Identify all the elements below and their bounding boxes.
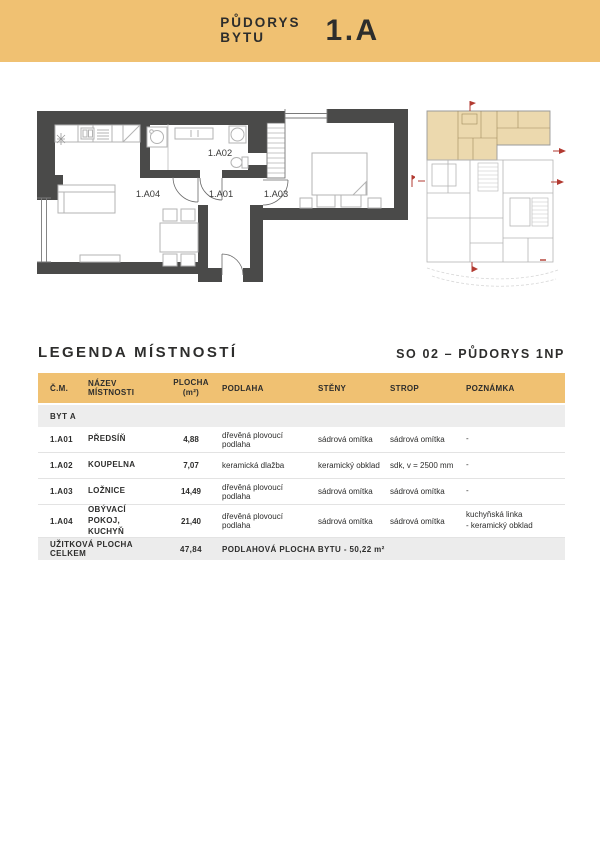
col-header-ceiling: STROP [390,384,466,393]
key-plan-staircase [478,163,548,226]
cell-area: 7,07 [160,461,222,470]
installation-shaft [267,123,285,178]
cell-ceiling: sádrová omítka [390,487,466,496]
table-section-row: BYT A [38,405,565,427]
cell-floor: dřevěná plovoucí podlaha [222,483,318,501]
room-label-1a04: 1.A04 [136,189,160,199]
cell-ceiling: sádrová omítka [390,517,466,526]
washing-machine [147,127,167,147]
cell-ceiling: sdk, v = 2500 mm [390,461,466,470]
legend-title: LEGENDA MÍSTNOSTÍ [38,344,237,361]
key-plan-terrain-lines [427,268,558,286]
cell-area: 21,40 [160,517,222,526]
cell-name: OBÝVACÍ POKOJ, KUCHYŇ [88,505,160,537]
room-label-1a03: 1.A03 [264,189,288,199]
section-mark-icon [412,175,415,187]
room-legend-table: Č.M. NÁZEV MÍSTNOSTI PLOCHA (m²) PODLAHA… [38,373,565,560]
header-band: PŮDORYS BYTU 1.A [0,0,600,62]
cell-cm: 1.A01 [50,435,88,444]
table-footer-row: UŽITKOVÁ PLOCHA CELKEM 47,84 PODLAHOVÁ P… [38,538,565,560]
dining-table [160,209,198,266]
col-header-area: PLOCHA (m²) [160,378,222,398]
cell-walls: sádrová omítka [318,487,390,496]
cell-floor: dřevěná plovoucí podlaha [222,512,318,530]
cell-ceiling: sádrová omítka [390,435,466,444]
cell-name: PŘEDSÍŇ [88,434,160,445]
col-header-floor: PODLAHA [222,384,318,393]
cell-note: - [466,460,565,471]
cell-floor: keramická dlažba [222,461,318,470]
legend-header: LEGENDA MÍSTNOSTÍ SO 02 – PŮDORYS 1NP [38,344,565,361]
room-label-1a01: 1.A01 [209,189,233,199]
cell-area: 14,49 [160,487,222,496]
table-row: 1.A03 LOŽNICE 14,49 dřevěná plovoucí pod… [38,479,565,505]
col-header-cm: Č.M. [50,384,88,393]
page: PŮDORYS BYTU 1.A [0,0,600,849]
tv-bench [80,255,120,262]
cell-cm: 1.A02 [50,461,88,470]
legend-subtitle: SO 02 – PŮDORYS 1NP [396,347,565,361]
footer-total-area: 47,84 [160,545,222,554]
col-header-note: POZNÁMKA [466,384,565,393]
cell-walls: keramický obklad [318,461,390,470]
sofa [58,185,115,213]
key-plan [418,98,568,293]
window-left [37,198,51,262]
kitchen-counter [55,125,140,142]
page-title-line1: PŮDORYS [220,16,300,31]
bathroom-fixtures [168,124,248,170]
table-row: 1.A04 OBÝVACÍ POKOJ, KUCHYŇ 21,40 dřevěn… [38,505,565,538]
cell-name: LOŽNICE [88,486,160,497]
window-top [285,109,327,123]
cell-area: 4,88 [160,435,222,444]
cell-cm: 1.A03 [50,487,88,496]
header-content: PŮDORYS BYTU 1.A [0,0,600,62]
section-label: BYT A [50,412,76,421]
table-row: 1.A01 PŘEDSÍŇ 4,88 dřevěná plovoucí podl… [38,427,565,453]
cell-note: kuchyňská linka - keramický obklad [466,510,565,532]
cell-floor: dřevěná plovoucí podlaha [222,431,318,449]
main-floor-plan: 1.A02 1.A04 1.A01 1.A03 [35,105,415,295]
cell-walls: sádrová omítka [318,435,390,444]
unit-label: 1.A [326,14,380,48]
col-header-name: NÁZEV MÍSTNOSTI [88,379,160,397]
col-header-walls: STĚNY [318,384,390,393]
room-label-1a02: 1.A02 [208,148,232,158]
cell-name: KOUPELNA [88,460,160,471]
cell-note: - [466,434,565,445]
bed [300,153,381,208]
table-header-row: Č.M. NÁZEV MÍSTNOSTI PLOCHA (m²) PODLAHA… [38,373,565,403]
cell-cm: 1.A04 [50,517,88,526]
footer-total-label: UŽITKOVÁ PLOCHA CELKEM [50,540,160,558]
key-plan-highlighted-unit [427,111,550,160]
page-title-line2: BYTU [220,31,300,46]
table-row: 1.A02 KOUPELNA 7,07 keramická dlažba ker… [38,453,565,479]
cell-walls: sádrová omítka [318,517,390,526]
cell-note: - [466,486,565,497]
footer-floor-area-note: PODLAHOVÁ PLOCHA BYTU - 50,22 m² [222,545,565,554]
page-title: PŮDORYS BYTU [220,16,300,45]
